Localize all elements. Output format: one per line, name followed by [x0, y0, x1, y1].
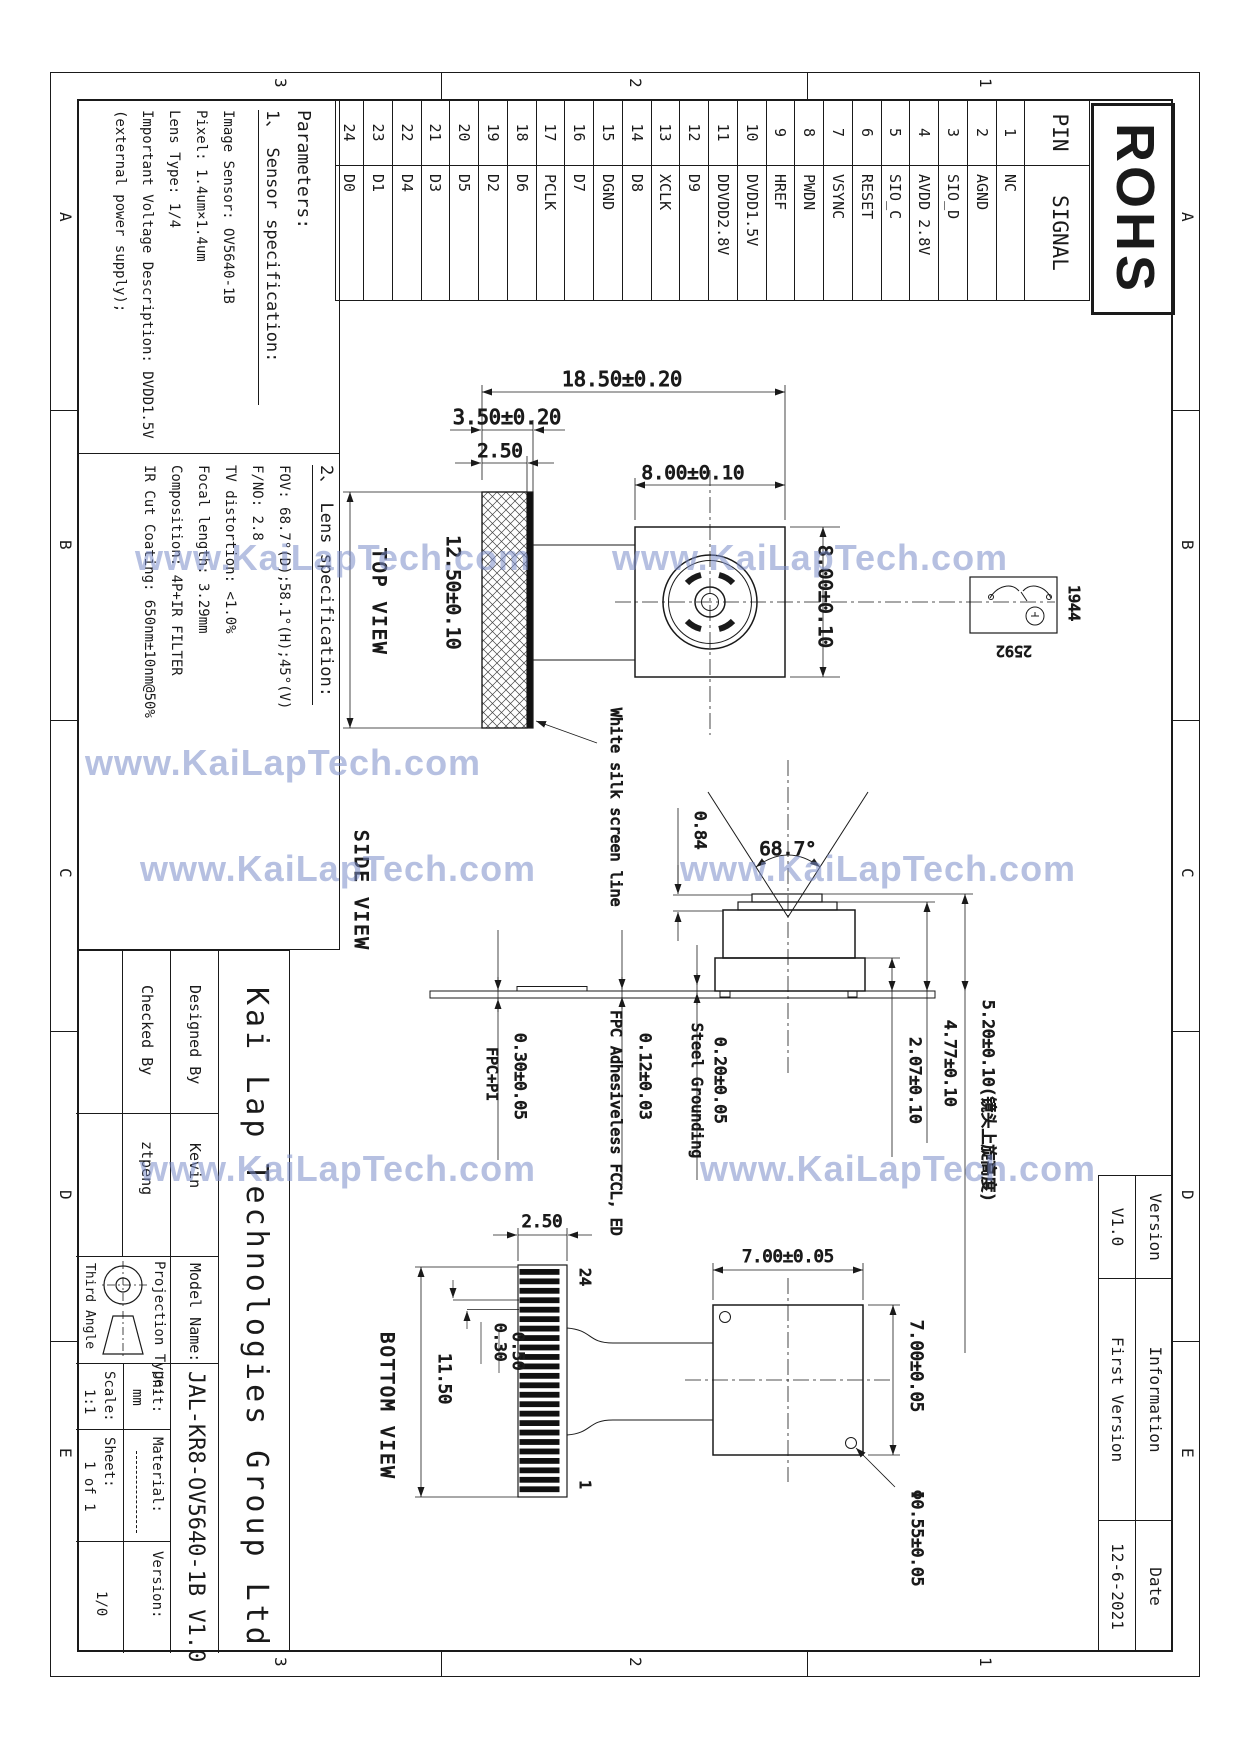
- sensor-spec-line: Pixel: 1.4um×1.4um: [193, 110, 209, 439]
- zone-tick: [1173, 1031, 1200, 1032]
- pin-number: 5: [882, 100, 910, 166]
- pin-number: 18: [508, 100, 536, 166]
- watermark-text: www.KaiLapTech.com: [85, 742, 481, 784]
- pin-row: 13XCLK: [652, 100, 681, 300]
- pin-row: 12D9: [681, 100, 710, 300]
- material-label: Material:: [149, 1437, 165, 1513]
- pin-row: 10DVDD1.5V: [738, 100, 767, 300]
- lens-spec-line: IR Cut Coating: 650nm±10nm@50%: [141, 465, 157, 718]
- zone-digit-left: 3: [271, 78, 290, 88]
- drawing-page: AABBCCDDEE112233 ROHS PIN SIGNAL 1NC2AGN…: [0, 0, 1240, 1755]
- connector-fingers: [520, 1269, 560, 1492]
- sensor-spec-line: Important Voltage Description: DVDD1.5V: [139, 110, 155, 439]
- zone-tick: [50, 1341, 77, 1342]
- sensor-spec-heading: 1、 Sensor specification:: [258, 110, 281, 405]
- company-name: Kai Lap Technologies Group Ltd: [240, 987, 273, 1649]
- pin-signal: RESET: [853, 166, 881, 300]
- dim-body-height: 7.00±0.05: [906, 1320, 926, 1412]
- unit-value: mm: [129, 1389, 145, 1406]
- dim-hole-diameter: Φ0.55±0.05: [908, 1490, 927, 1586]
- lens-spec-line: Composition: 4P+IR FILTER: [168, 465, 184, 718]
- pin-number: 10: [738, 100, 766, 166]
- revision-column: VersionV1.0: [1098, 1175, 1173, 1278]
- zone-letter-bottom: A: [56, 212, 75, 222]
- model-name-value: JAL-KR8-OV5640-1B V1.0: [183, 1371, 207, 1662]
- pin-row: 23D1: [364, 100, 393, 300]
- pin-signal: DVDD1.5V: [738, 166, 766, 300]
- pin-signal: D5: [451, 166, 479, 300]
- parameters-box: Parameters: 1、 Sensor specification: Ima…: [77, 99, 340, 950]
- connector-finger: [520, 1401, 560, 1407]
- revision-value: 12-6-2021: [1108, 1521, 1127, 1652]
- pin-row: 6RESET: [853, 100, 882, 300]
- dim-finger-width: 0.30: [491, 1323, 510, 1362]
- zone-tick: [1173, 410, 1200, 411]
- lens-spec-lines: FOV: 68.7°(D);58.1°(H);45°(V)F/NO: 2.8TV…: [141, 465, 303, 718]
- pin-number: 4: [911, 100, 939, 166]
- sensor-width-label: 2592: [996, 642, 1032, 660]
- watermark-text: www.KaiLapTech.com: [135, 537, 531, 579]
- dim-mid-height: 4.77±0.10: [941, 1020, 960, 1107]
- connector-finger: [520, 1486, 560, 1492]
- pin-row: 20D5: [451, 100, 480, 300]
- designed-by-label: Designed By: [186, 985, 204, 1084]
- watermark-text: www.KaiLapTech.com: [140, 1148, 536, 1190]
- pin-number: 14: [623, 100, 651, 166]
- dim-head-width: 8.00±0.10: [642, 462, 745, 484]
- connector-finger: [520, 1269, 560, 1275]
- sensor-spec-lines: Image Sensor: OV5640-1BPixel: 1.4um×1.4u…: [112, 110, 247, 439]
- connector-finger: [520, 1297, 560, 1303]
- dim-strip-length: 11.50: [434, 1353, 454, 1404]
- pin-row: 18D6: [508, 100, 537, 300]
- pin-signal: D9: [681, 166, 709, 300]
- zone-tick: [50, 1031, 77, 1032]
- revision-header: Date: [1146, 1521, 1165, 1652]
- third-angle-symbol: [97, 1261, 149, 1361]
- pin-signal: D1: [364, 166, 392, 300]
- pin-row: 5SIO_C: [882, 100, 911, 300]
- pin-number: 20: [451, 100, 479, 166]
- pin-row: 16D7: [566, 100, 595, 300]
- connector-finger: [520, 1392, 560, 1398]
- zone-letter-top: D: [1178, 1190, 1197, 1200]
- pin-signal: D6: [508, 166, 536, 300]
- scale-label: Scale:: [101, 1371, 117, 1422]
- dim-steel-thickness: 0.20±0.05: [711, 1037, 730, 1124]
- pin-number: 1: [997, 100, 1025, 166]
- pin-signal: SIO_C: [882, 166, 910, 300]
- zone-digit-left: 2: [626, 78, 645, 88]
- pin-row: 19D2: [479, 100, 508, 300]
- connector-finger: [520, 1326, 560, 1332]
- revision-value: V1.0: [1108, 1176, 1127, 1278]
- zone-letter-top: A: [1178, 212, 1197, 222]
- pin-row: 15DGND: [594, 100, 623, 300]
- revision-table: VersionV1.0InformationFirst VersionDate1…: [1098, 1175, 1173, 1652]
- watermark-text: www.KaiLapTech.com: [680, 848, 1076, 890]
- zone-letter-bottom: E: [56, 1448, 75, 1458]
- fpc-layer-label: FPC+PI: [483, 1047, 501, 1101]
- sensor-box: [970, 577, 1057, 633]
- pin-table-header-pin: PIN: [1026, 100, 1090, 166]
- zone-tick: [807, 72, 808, 99]
- pin-signal: SIO_D: [939, 166, 967, 300]
- dim-silk-edge: 2.50: [477, 440, 523, 462]
- dim-lens-step: 0.84: [691, 811, 710, 850]
- watermark-text: www.KaiLapTech.com: [612, 537, 1008, 579]
- topview-fpc-strip: [482, 492, 527, 728]
- watermark-text: www.KaiLapTech.com: [700, 1148, 1096, 1190]
- pin-number: 11: [709, 100, 737, 166]
- pin-number: 23: [364, 100, 392, 166]
- connector-finger: [520, 1373, 560, 1379]
- title-block: Kai Lap Technologies Group Ltd Designed …: [77, 950, 290, 1652]
- projection-type-value: Third Angle: [82, 1263, 97, 1349]
- pin-signal: DGND: [594, 166, 622, 300]
- pin-row: 21D3: [422, 100, 451, 300]
- parameters-title: Parameters:: [293, 110, 313, 229]
- scale-value: 1:1: [81, 1389, 97, 1414]
- connector-finger: [520, 1411, 560, 1417]
- pin-number: 7: [824, 100, 852, 166]
- pin-number: 6: [853, 100, 881, 166]
- pin-signal: D3: [422, 166, 450, 300]
- pin-number: 9: [767, 100, 795, 166]
- pin-number: 17: [537, 100, 565, 166]
- pin-row: 8PWDN: [796, 100, 825, 300]
- dim-finger-pitch: 0.50: [509, 1332, 528, 1371]
- connector-finger: [520, 1420, 560, 1426]
- connector-finger: [520, 1439, 560, 1445]
- revision-header: Information: [1146, 1279, 1165, 1520]
- zone-letter-top: B: [1178, 540, 1197, 550]
- checked-by-label: Checked By: [138, 985, 156, 1075]
- sensor-spec-line: Lens Type: 1/4: [166, 110, 182, 439]
- pin-signal: D8: [623, 166, 651, 300]
- pin-signal: PCLK: [537, 166, 565, 300]
- lens-spec-line: FOV: 68.7°(D);58.1°(H);45°(V): [276, 465, 292, 718]
- unit-label: Unit:: [149, 1371, 165, 1413]
- pin-signal: NC: [997, 166, 1025, 300]
- model-name-label: Model Name:: [186, 1263, 204, 1362]
- connector-finger: [520, 1458, 560, 1464]
- zone-tick: [1173, 720, 1200, 721]
- pin-signal: D7: [566, 166, 594, 300]
- dim-silk-offset: 3.50±0.20: [453, 405, 561, 429]
- sideview-lens-top: [752, 894, 822, 902]
- revision-header: Version: [1146, 1176, 1165, 1278]
- sideview-housing: [723, 910, 855, 958]
- version-label: Version:: [149, 1551, 165, 1618]
- pin-number: 19: [479, 100, 507, 166]
- pin-signal: D2: [479, 166, 507, 300]
- bottomview-neck: [567, 1328, 713, 1435]
- pin-row: 3SIO_D: [939, 100, 968, 300]
- sheet-label: Sheet:: [101, 1437, 117, 1488]
- rohs-label: ROHS: [1105, 106, 1164, 312]
- sensor-height-label: 1944: [1065, 585, 1083, 621]
- pin-table: PIN SIGNAL 1NC2AGND3SIO_D4AVDD 2.8V5SIO_…: [335, 99, 1090, 301]
- pin-row: 11DDVDD2.8V: [709, 100, 738, 300]
- pin1-label: 1: [576, 1480, 594, 1489]
- sideview-fpc: [430, 991, 935, 998]
- pin-number: 12: [681, 100, 709, 166]
- pin-signal: AGND: [968, 166, 996, 300]
- material-value-dashes: [136, 1451, 137, 1533]
- lens-spec-line: Focal length: 3.29mm: [195, 465, 211, 718]
- pin-signal: VSYNC: [824, 166, 852, 300]
- drawing-sheet: AABBCCDDEE112233 ROHS PIN SIGNAL 1NC2AGN…: [0, 0, 1240, 1755]
- dim-fpc-thickness: 0.30±0.05: [511, 1033, 530, 1120]
- pin-signal: DDVDD2.8V: [709, 166, 737, 300]
- pin-table-rows: 1NC2AGND3SIO_D4AVDD 2.8V5SIO_C6RESET7VSY…: [336, 100, 1026, 300]
- alignment-hole-2: [846, 1438, 857, 1449]
- sheet-value: 1 of 1: [81, 1461, 97, 1512]
- dim-body-width: 7.00±0.05: [742, 1247, 834, 1267]
- pin-signal: XCLK: [652, 166, 680, 300]
- sideview-body: [715, 958, 865, 991]
- watermark-text: www.KaiLapTech.com: [140, 848, 536, 890]
- lens-spec-heading: 2、 Lens specification:: [312, 465, 335, 705]
- connector-finger: [520, 1278, 560, 1284]
- zone-digit-left: 1: [976, 78, 995, 88]
- zone-tick: [50, 410, 77, 411]
- pin-row: 7VSYNC: [824, 100, 853, 300]
- sideview-stiffener: [517, 987, 587, 992]
- pin-number: 22: [393, 100, 421, 166]
- pin-number: 3: [939, 100, 967, 166]
- zone-letter-top: C: [1178, 868, 1197, 878]
- zone-letter-bottom: B: [56, 540, 75, 550]
- pin-row: 22D4: [393, 100, 422, 300]
- zone-digit-right: 1: [976, 1657, 995, 1667]
- connector-finger: [520, 1430, 560, 1436]
- pin-row: 2AGND: [968, 100, 997, 300]
- pin-signal: D4: [393, 166, 421, 300]
- dim-strip-width: 2.50: [522, 1212, 563, 1232]
- revision-column: InformationFirst Version: [1098, 1278, 1173, 1520]
- bottom-view-label: BOTTOM VIEW: [376, 1332, 398, 1480]
- silk-screen-line: [527, 492, 533, 728]
- zone-tick: [1173, 1341, 1200, 1342]
- zone-tick: [441, 72, 442, 99]
- connector-finger: [520, 1382, 560, 1388]
- pin-signal: AVDD 2.8V: [911, 166, 939, 300]
- revision-column: Date12-6-2021: [1098, 1520, 1173, 1652]
- pin-number: 2: [968, 100, 996, 166]
- connector-finger: [520, 1467, 560, 1473]
- pin-row: 17PCLK: [537, 100, 566, 300]
- revision-value: First Version: [1108, 1279, 1127, 1520]
- alignment-hole-1: [720, 1312, 731, 1323]
- pin-number: 16: [566, 100, 594, 166]
- sensor-spec-line: Image Sensor: OV5640-1B: [220, 110, 236, 439]
- version-value: 1/0: [93, 1591, 109, 1616]
- zone-digit-right: 3: [271, 1657, 290, 1667]
- pin-row: 4AVDD 2.8V: [911, 100, 940, 300]
- sideview-barrel: [738, 902, 837, 910]
- sensor-box-glyphs: [989, 586, 1052, 625]
- sensor-spec-line: (external power supply);: [112, 110, 128, 439]
- zone-tick: [50, 720, 77, 721]
- dim-body-height: 2.07±0.10: [906, 1037, 925, 1124]
- pin-number: 15: [594, 100, 622, 166]
- pin-number: 8: [796, 100, 824, 166]
- zone-letter-bottom: D: [56, 1190, 75, 1200]
- connector-finger: [520, 1477, 560, 1483]
- zone-letter-bottom: C: [56, 868, 75, 878]
- connector-finger: [520, 1316, 560, 1322]
- lens-spec-line: F/NO: 2.8: [249, 465, 265, 718]
- connector-finger: [520, 1449, 560, 1455]
- pin-number: 13: [652, 100, 680, 166]
- pin-signal: PWDN: [796, 166, 824, 300]
- pin-table-header-signal: SIGNAL: [1026, 166, 1090, 300]
- pin24-label: 24: [576, 1268, 594, 1286]
- pin-row: 14D8: [623, 100, 652, 300]
- connector-finger: [520, 1288, 560, 1294]
- bottom-view: BOTTOM VIEW 24 1 2.50 0.30 0.50 11.50: [335, 1130, 935, 1670]
- pin-signal: HREF: [767, 166, 795, 300]
- pin-number: 21: [422, 100, 450, 166]
- pin-row: 9HREF: [767, 100, 796, 300]
- rohs-box: ROHS: [1091, 103, 1175, 315]
- lens-spec-line: TV distortion: <1.0%: [222, 465, 238, 718]
- zone-letter-top: E: [1178, 1448, 1197, 1458]
- pin-row: 1NC: [997, 100, 1026, 300]
- dim-total-length: 18.50±0.20: [562, 367, 682, 391]
- connector-finger: [520, 1307, 560, 1313]
- dim-adhesive-thickness: 0.12±0.03: [636, 1033, 655, 1120]
